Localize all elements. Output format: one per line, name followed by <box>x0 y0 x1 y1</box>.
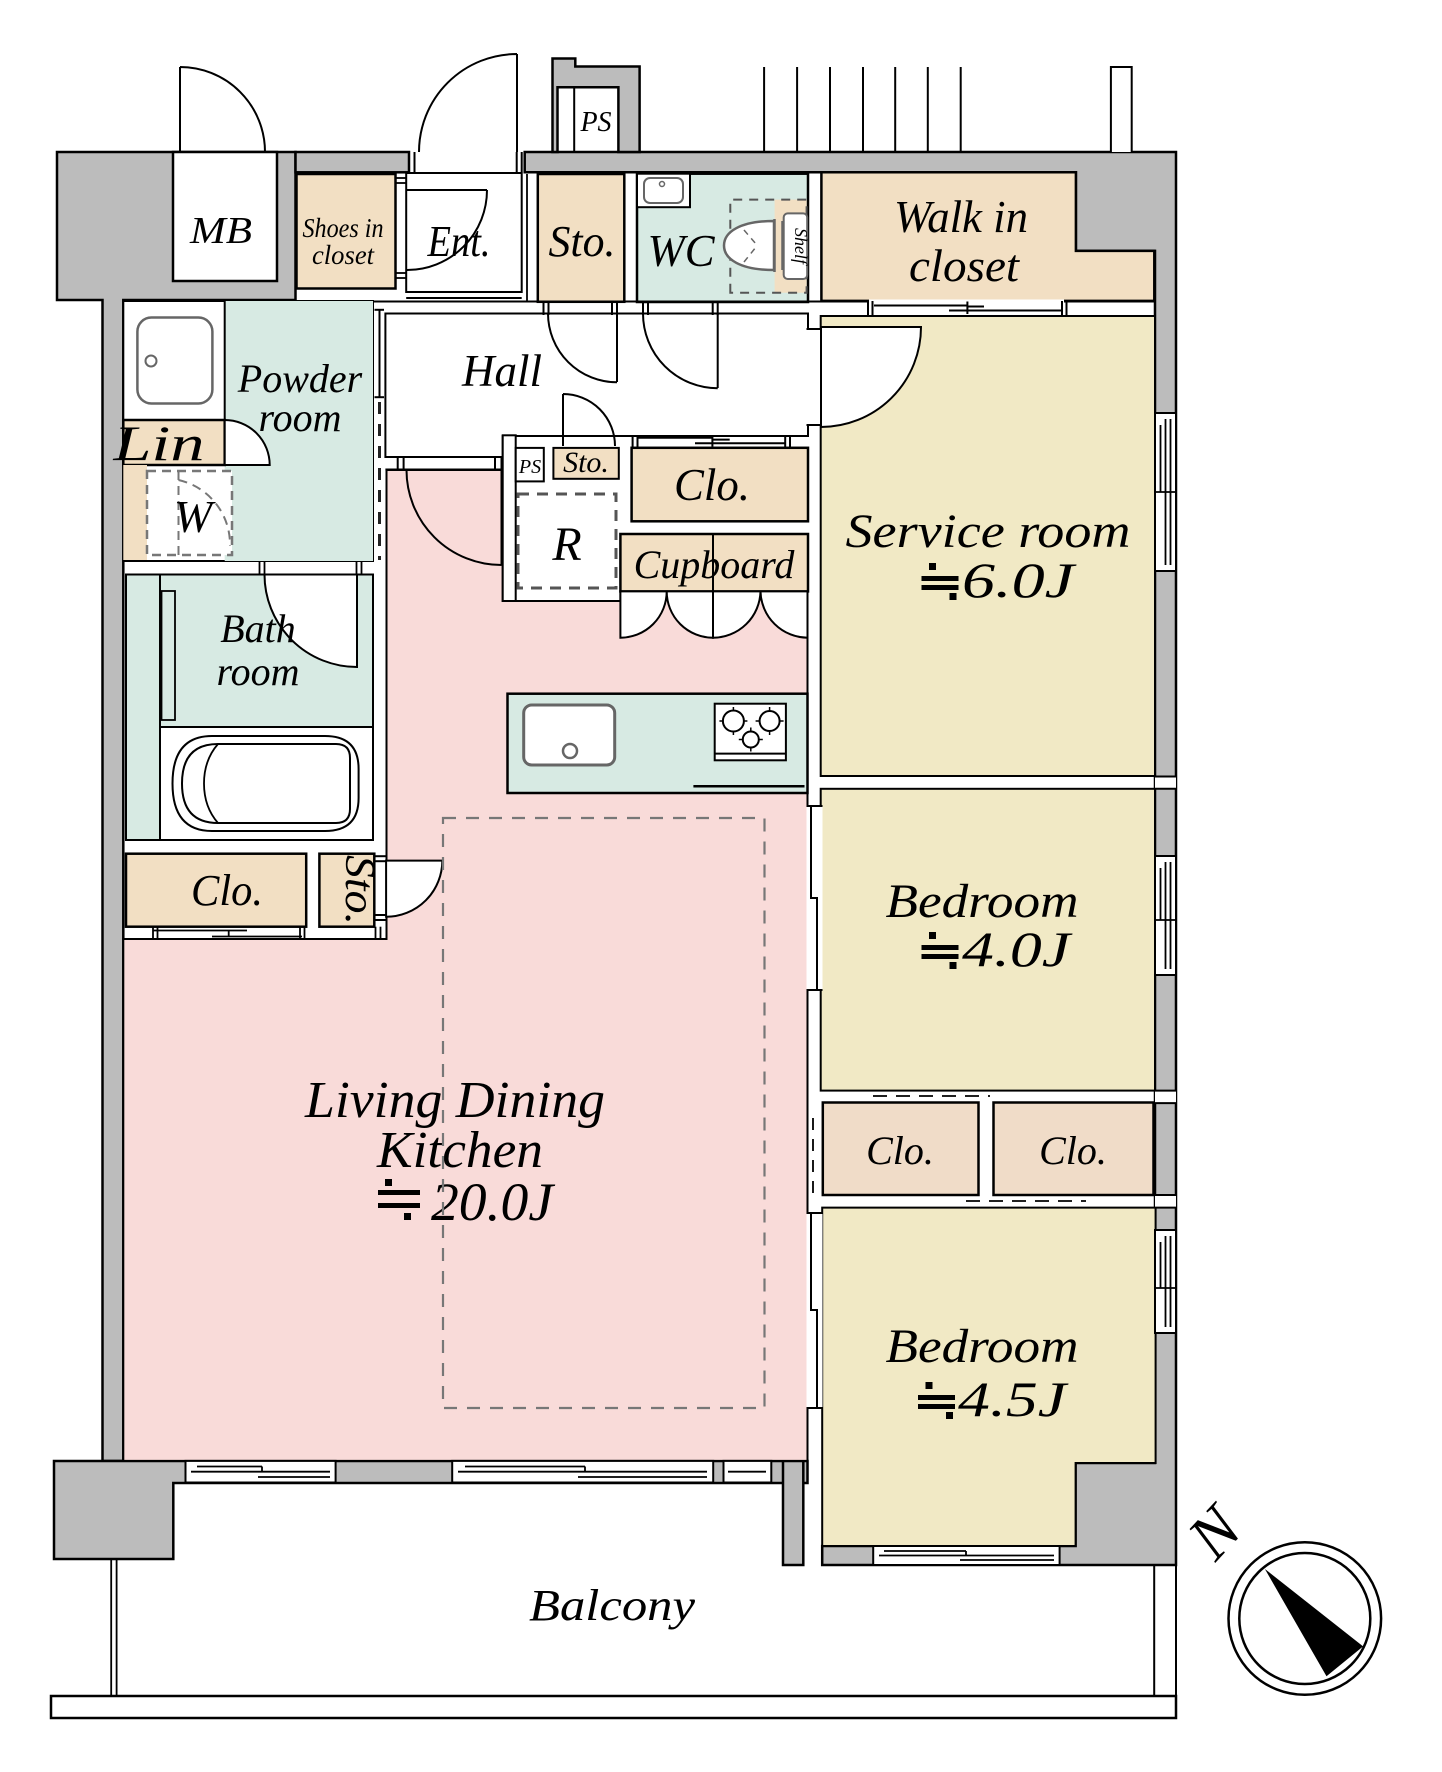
svg-text:W: W <box>174 491 216 542</box>
svg-text:Living Dining: Living Dining <box>304 1072 605 1129</box>
svg-text:4.5J: 4.5J <box>958 1371 1070 1427</box>
svg-text:Clo.: Clo. <box>1039 1128 1107 1173</box>
svg-text:Clo.: Clo. <box>674 459 750 510</box>
svg-text:Ent.: Ent. <box>427 217 491 266</box>
svg-text:Bedroom: Bedroom <box>886 1320 1079 1373</box>
svg-text:6.0J: 6.0J <box>962 552 1078 608</box>
svg-text:4.0J: 4.0J <box>962 921 1074 977</box>
svg-text:Hall: Hall <box>461 346 542 396</box>
svg-text:Balcony: Balcony <box>529 1581 696 1630</box>
svg-text:PS: PS <box>518 456 541 478</box>
svg-text:20.0J: 20.0J <box>431 1172 556 1232</box>
svg-text:WC: WC <box>648 226 716 276</box>
svg-text:Bath: Bath <box>220 606 296 651</box>
svg-text:Shelf: Shelf <box>791 228 811 267</box>
svg-text:R: R <box>551 518 581 571</box>
svg-text:Service room: Service room <box>846 505 1131 558</box>
svg-text:Lin: Lin <box>112 415 204 471</box>
svg-text:Cupboard: Cupboard <box>634 542 796 587</box>
svg-text:room: room <box>259 395 342 440</box>
svg-text:Shoes in: Shoes in <box>303 213 384 243</box>
svg-text:MB: MB <box>189 210 252 252</box>
svg-text:room: room <box>217 649 300 694</box>
svg-text:Clo.: Clo. <box>191 866 263 915</box>
svg-text:Walk in: Walk in <box>894 191 1028 242</box>
svg-text:closet: closet <box>909 240 1020 291</box>
svg-text:Sto.: Sto. <box>549 217 616 266</box>
svg-text:Clo.: Clo. <box>866 1128 934 1173</box>
svg-text:Sto.: Sto. <box>563 446 609 479</box>
svg-text:Kitchen: Kitchen <box>376 1122 543 1179</box>
svg-text:PS: PS <box>579 107 611 138</box>
svg-text:closet: closet <box>312 240 375 270</box>
